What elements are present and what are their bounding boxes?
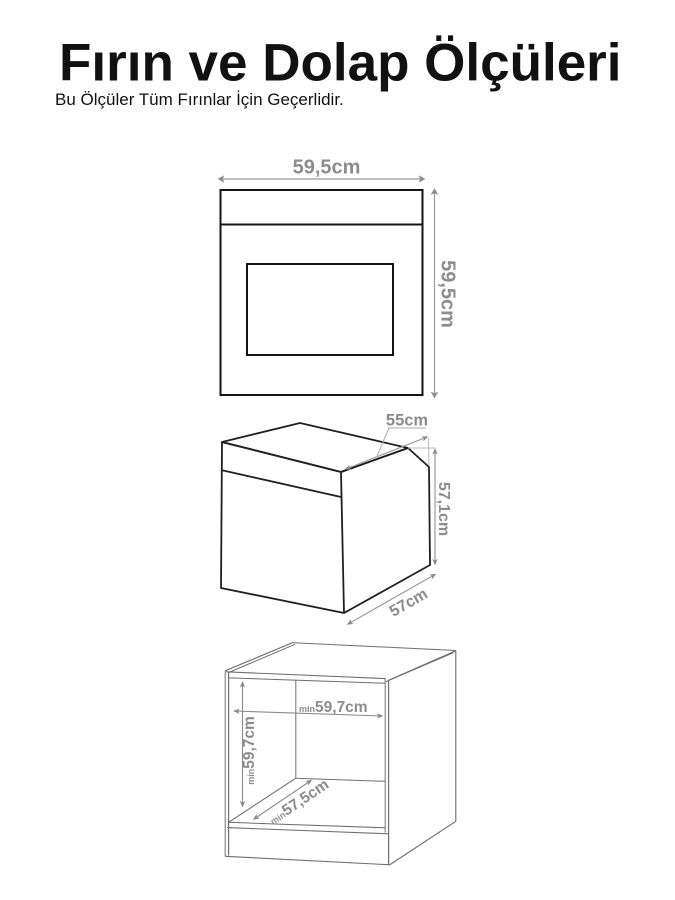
svg-text:59,5cm: 59,5cm: [437, 260, 459, 328]
svg-text:min57,5cm: min57,5cm: [266, 776, 332, 828]
svg-text:min59,7cm: min59,7cm: [299, 699, 368, 716]
svg-text:55cm: 55cm: [386, 412, 428, 430]
svg-text:Fırın ve Dolap Ölçüleri: Fırın ve Dolap Ölçüleri: [59, 34, 622, 93]
svg-text:59,5cm: 59,5cm: [293, 157, 361, 179]
svg-text:57cm: 57cm: [387, 586, 431, 621]
svg-text:min59,7cm: min59,7cm: [241, 716, 258, 785]
svg-text:Bu Ölçüler Tüm Fırınlar İçin G: Bu Ölçüler Tüm Fırınlar İçin Geçerlidir.: [55, 90, 344, 109]
svg-text:57,1cm: 57,1cm: [435, 482, 452, 536]
